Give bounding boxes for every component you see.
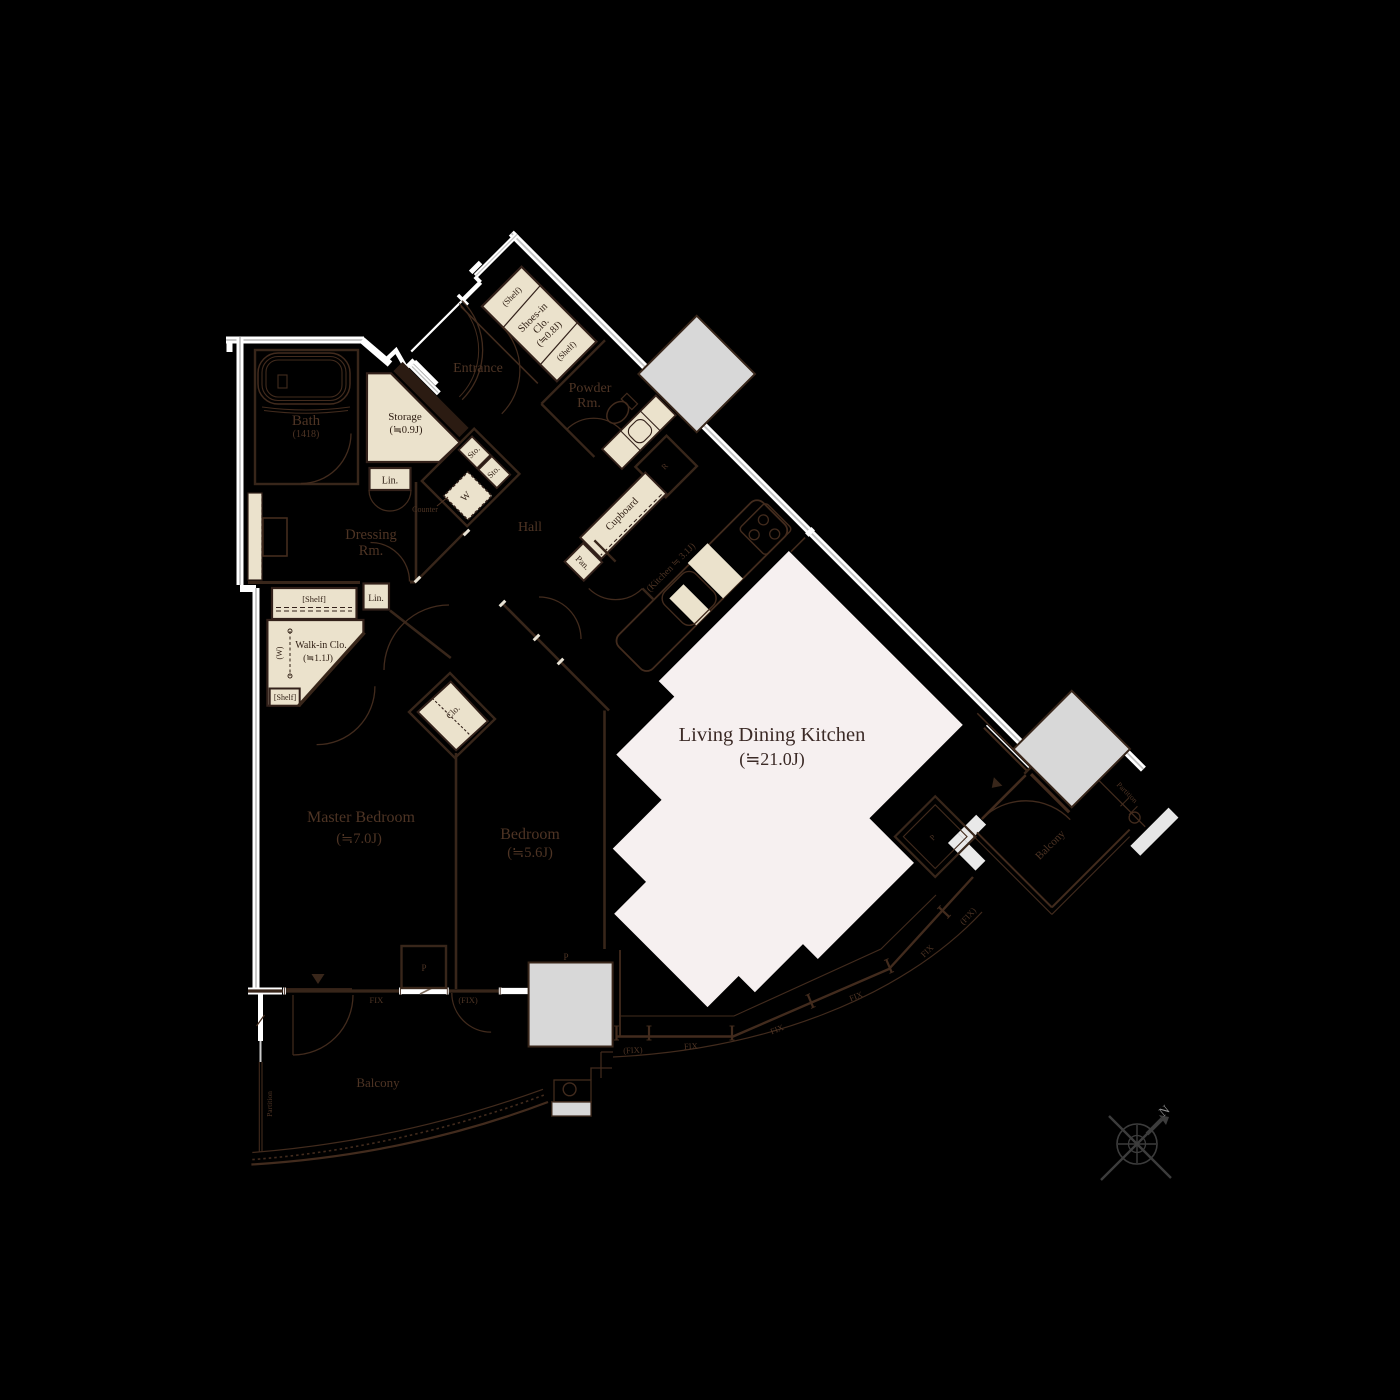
svg-text:FIX: FIX	[684, 1041, 698, 1052]
svg-text:P: P	[563, 952, 568, 962]
svg-text:(≒21.0J): (≒21.0J)	[739, 749, 805, 770]
svg-text:[Shelf]: [Shelf]	[302, 594, 326, 604]
svg-text:Entrance: Entrance	[453, 361, 503, 376]
svg-text:Counter: Counter	[412, 505, 438, 514]
svg-text:(≒7.0J): (≒7.0J)	[336, 831, 382, 847]
svg-text:Rm.: Rm.	[359, 543, 384, 559]
svg-text:(≒0.9J): (≒0.9J)	[389, 425, 423, 436]
svg-text:(W): (W)	[275, 646, 284, 659]
svg-text:Rm.: Rm.	[577, 396, 601, 411]
svg-text:P: P	[421, 963, 426, 973]
svg-text:Walk-in Clo.: Walk-in Clo.	[295, 640, 346, 651]
svg-text:(≒1.1J): (≒1.1J)	[303, 653, 333, 664]
svg-text:Dressing: Dressing	[345, 527, 397, 543]
svg-text:Storage: Storage	[388, 411, 422, 423]
svg-text:(1418): (1418)	[293, 429, 320, 440]
svg-text:Bedroom: Bedroom	[500, 826, 560, 843]
svg-text:(FIX): (FIX)	[458, 995, 478, 1005]
svg-text:Master Bedroom: Master Bedroom	[307, 809, 416, 826]
svg-text:Lin.: Lin.	[382, 476, 398, 487]
svg-text:Hall: Hall	[518, 520, 542, 535]
svg-text:FIX: FIX	[370, 995, 384, 1005]
svg-text:Lin.: Lin.	[368, 594, 384, 604]
svg-text:Living Dining Kitchen: Living Dining Kitchen	[679, 724, 866, 746]
svg-text:Partition: Partition	[265, 1091, 274, 1117]
svg-text:Balcony: Balcony	[356, 1075, 400, 1090]
svg-text:(≒5.6J): (≒5.6J)	[507, 845, 553, 861]
svg-text:Powder: Powder	[569, 381, 612, 396]
svg-text:(FIX): (FIX)	[623, 1044, 643, 1055]
svg-text:Bath: Bath	[292, 413, 321, 429]
svg-text:[Shelf]: [Shelf]	[274, 693, 297, 702]
